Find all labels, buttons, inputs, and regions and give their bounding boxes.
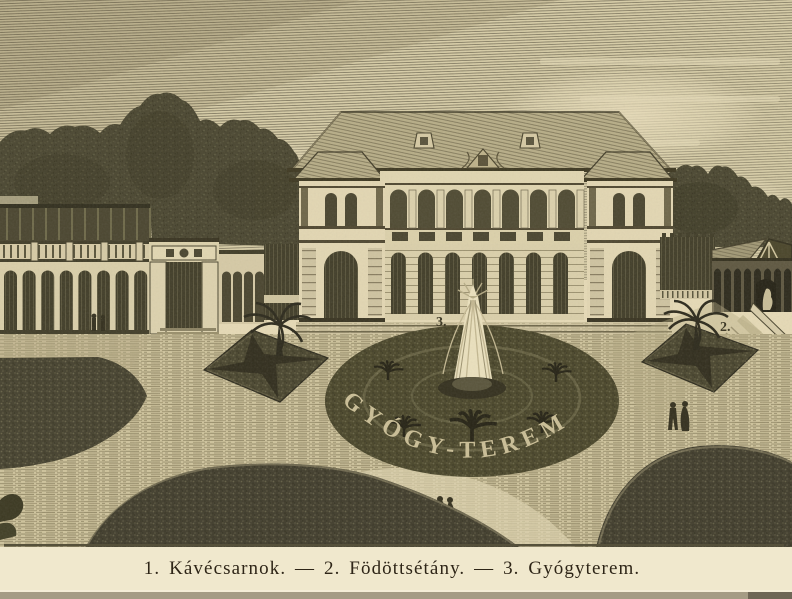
svg-text:1. Kávécsarnok. — 2. Födöttsét: 1. Kávécsarnok. — 2. Födöttsétány. — 3. … [144, 558, 640, 579]
